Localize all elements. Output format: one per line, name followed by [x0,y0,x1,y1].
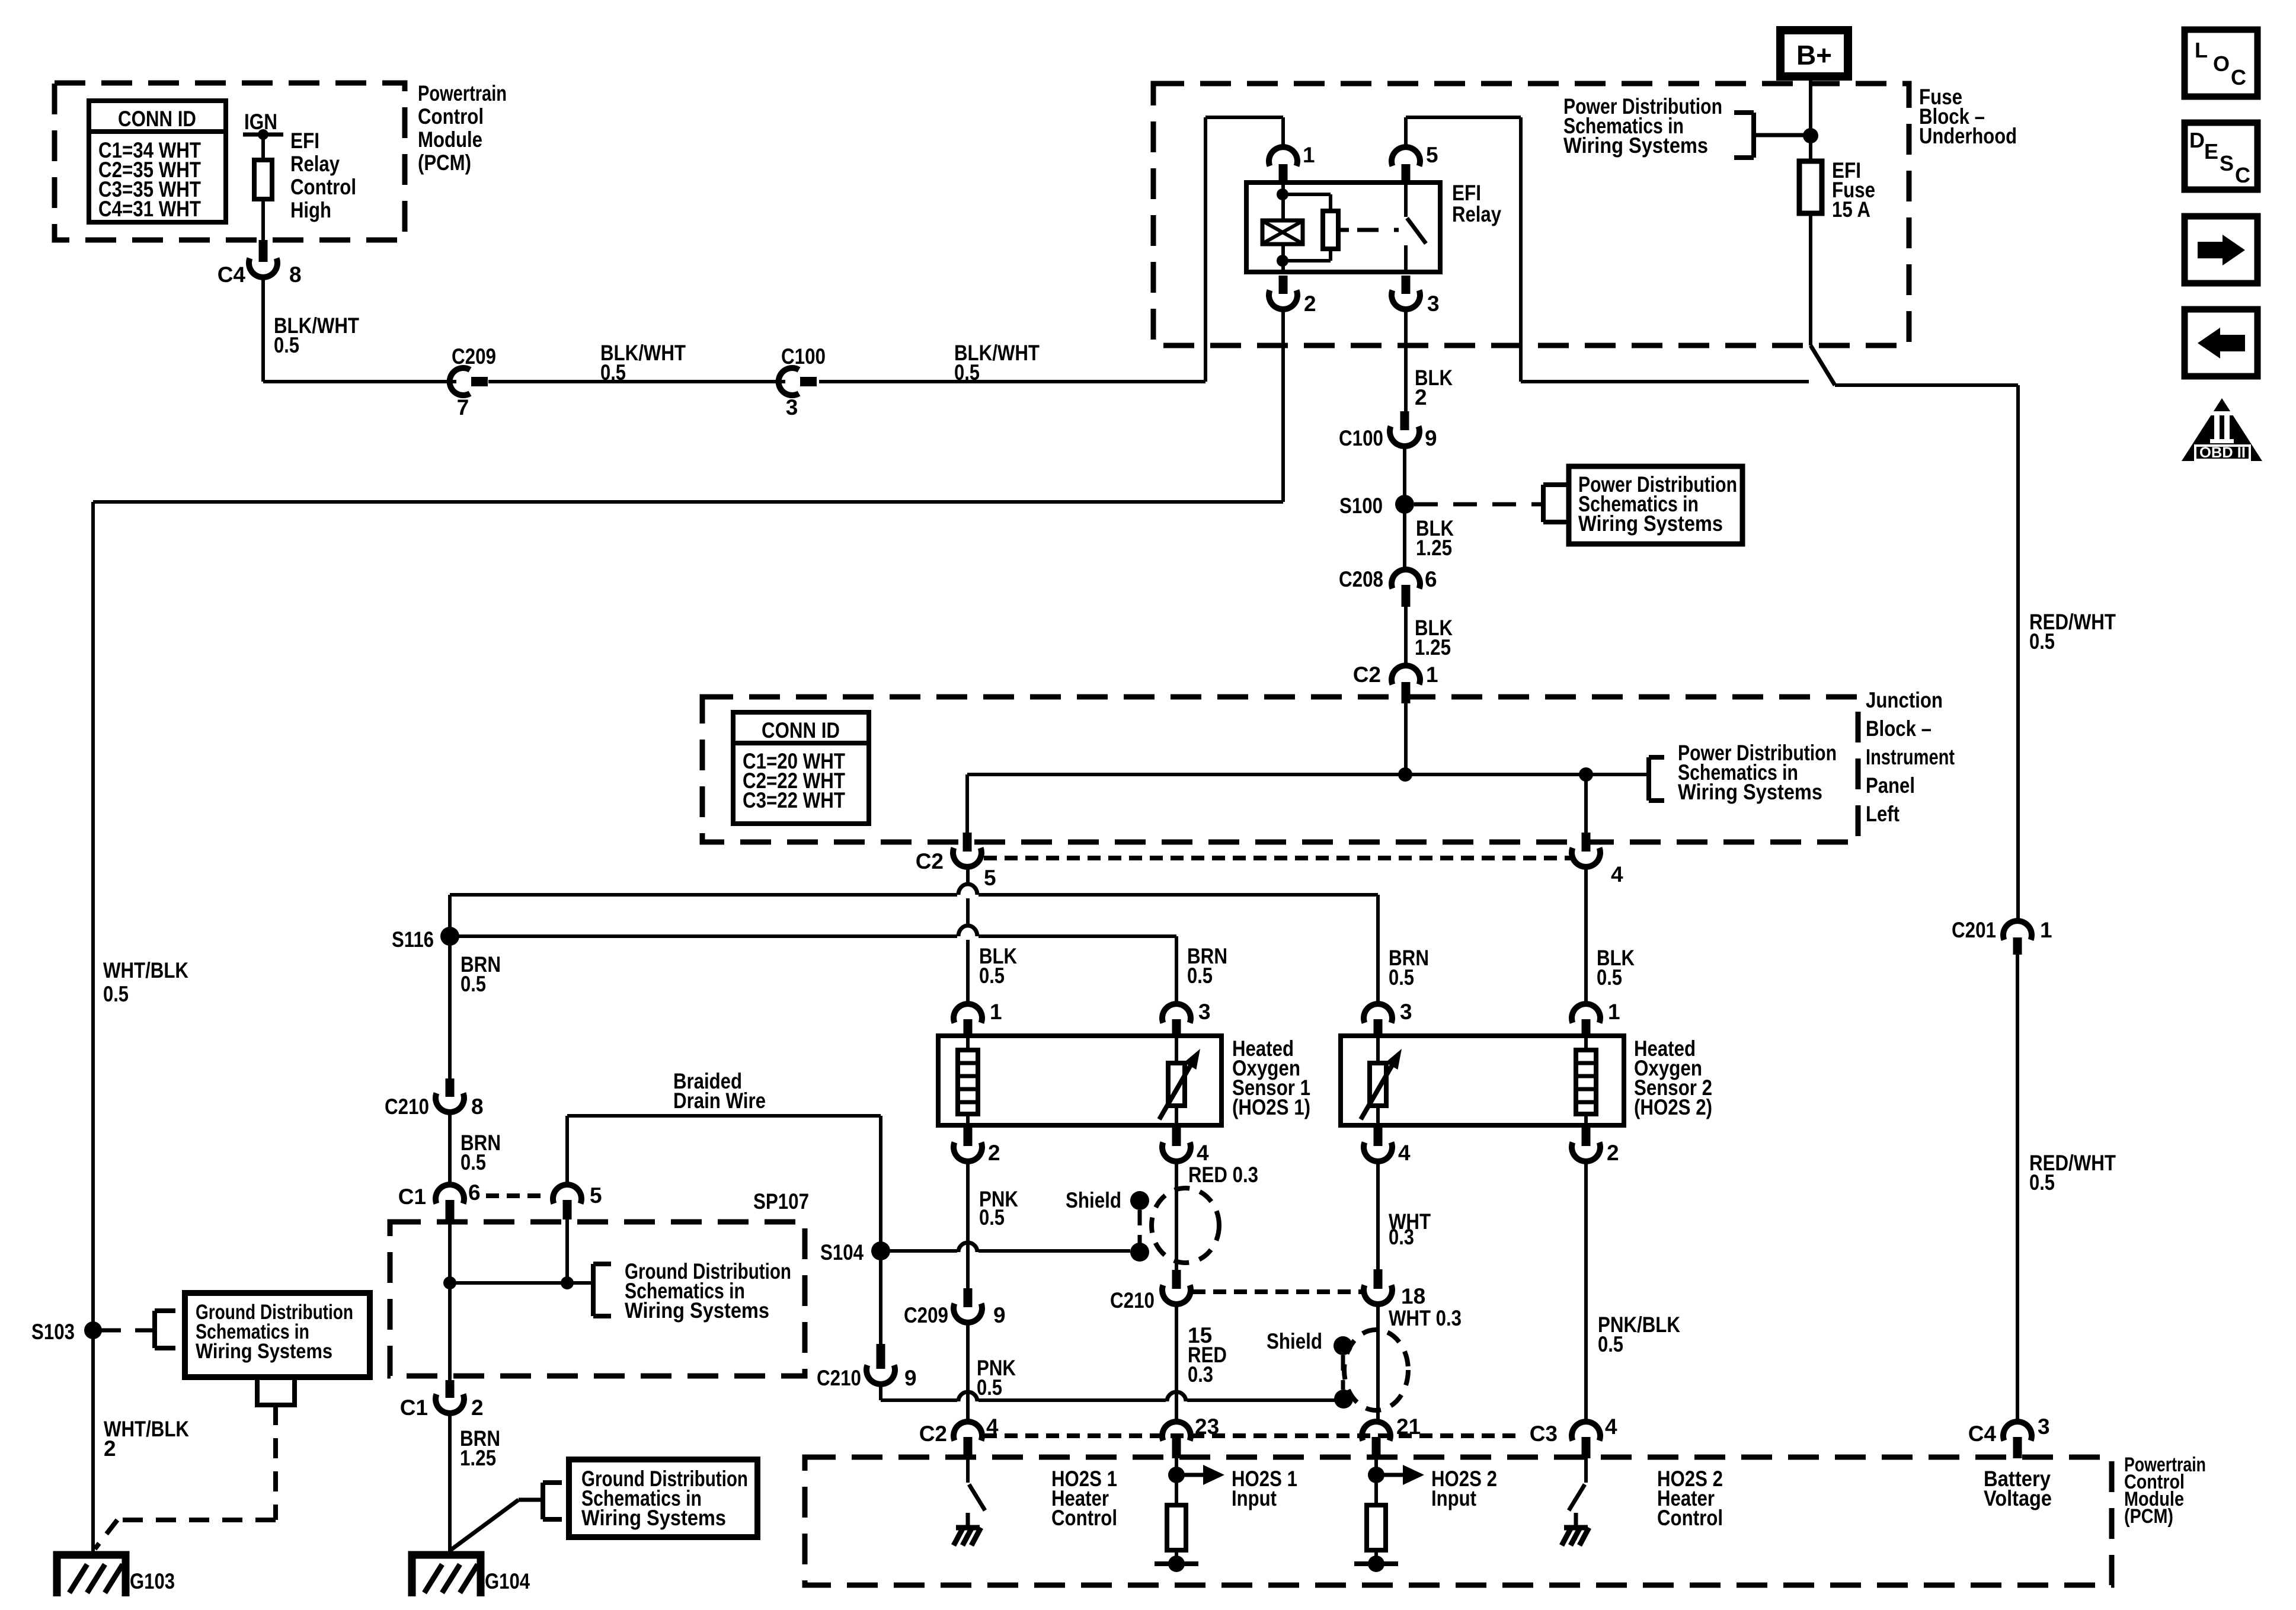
svg-text:Shield: Shield [1267,1329,1322,1353]
svg-text:C100: C100 [781,344,826,369]
svg-text:1: 1 [2040,918,2052,942]
svg-text:Wiring Systems: Wiring Systems [1578,511,1723,536]
svg-text:WHT 0.3: WHT 0.3 [1389,1306,1462,1330]
svg-text:0.5: 0.5 [103,982,129,1006]
svg-text:Underhood: Underhood [1919,124,2017,148]
svg-text:S116: S116 [392,927,434,952]
svg-text:5: 5 [1426,143,1438,167]
svg-text:9: 9 [993,1303,1006,1327]
svg-text:(PCM): (PCM) [2124,1505,2173,1528]
svg-text:C4: C4 [1968,1422,1997,1446]
svg-text:1: 1 [1303,143,1315,167]
svg-text:9: 9 [1425,426,1437,450]
svg-text:3: 3 [2038,1414,2050,1439]
svg-text:0.5: 0.5 [954,360,980,385]
svg-text:C3: C3 [1530,1422,1558,1446]
svg-text:E: E [2204,139,2218,164]
svg-text:4: 4 [1605,1414,1617,1439]
svg-text:Wiring Systems: Wiring Systems [625,1298,769,1323]
svg-text:9: 9 [904,1366,917,1390]
svg-text:C100: C100 [1339,426,1383,450]
svg-text:3: 3 [786,395,798,420]
svg-text:C2: C2 [1353,662,1381,687]
svg-text:C3=22 WHT: C3=22 WHT [743,788,845,812]
svg-text:0.5: 0.5 [1389,965,1414,990]
svg-text:Panel: Panel [1866,773,1915,798]
svg-text:15 A: 15 A [1832,197,1870,222]
svg-text:Wiring Systems: Wiring Systems [581,1506,726,1530]
svg-text:1: 1 [990,1000,1002,1024]
svg-text:0.5: 0.5 [2029,629,2055,654]
svg-text:Left: Left [1866,802,1900,826]
svg-text:C1: C1 [400,1395,428,1420]
svg-text:C2: C2 [919,1422,947,1446]
svg-text:4: 4 [1398,1141,1411,1165]
svg-text:4: 4 [1197,1141,1209,1165]
svg-text:2: 2 [988,1141,1000,1165]
svg-text:Control: Control [1051,1506,1117,1530]
svg-text:Wiring Systems: Wiring Systems [1563,133,1708,158]
svg-text:Powertrain: Powertrain [418,81,507,105]
svg-text:(HO2S 1): (HO2S 1) [1232,1095,1310,1119]
svg-text:Wiring Systems: Wiring Systems [1678,780,1822,804]
svg-text:Relay: Relay [1452,202,1501,226]
svg-text:C201: C201 [1952,918,1996,942]
svg-text:(PCM): (PCM) [418,151,471,175]
svg-text:C210: C210 [817,1366,861,1390]
svg-text:S100: S100 [1339,494,1383,518]
svg-text:C209: C209 [904,1303,948,1327]
svg-text:C210: C210 [1110,1288,1155,1313]
svg-text:8: 8 [289,263,302,287]
svg-text:B+: B+ [1796,40,1832,71]
svg-text:0.5: 0.5 [461,972,486,996]
svg-text:6: 6 [1425,567,1437,591]
svg-text:G104: G104 [485,1569,530,1593]
svg-text:G103: G103 [130,1569,175,1593]
svg-text:Control: Control [1657,1506,1723,1530]
svg-text:4: 4 [1611,862,1623,886]
svg-text:C1: C1 [398,1185,426,1209]
svg-text:0.5: 0.5 [461,1150,486,1174]
svg-text:L: L [2195,38,2208,62]
svg-text:7: 7 [457,395,469,420]
svg-text:C2: C2 [916,849,944,873]
svg-text:3: 3 [1427,292,1440,316]
svg-text:0.5: 0.5 [977,1375,1002,1400]
svg-text:Control: Control [418,104,484,129]
svg-text:OBD II: OBD II [2199,444,2246,461]
svg-text:5: 5 [984,866,996,890]
svg-text:WHT/BLK: WHT/BLK [103,958,188,982]
svg-text:Shield: Shield [1066,1188,1121,1212]
svg-text:High: High [290,198,331,222]
svg-text:C: C [2235,163,2250,187]
svg-text:Relay: Relay [290,152,340,176]
svg-text:Control: Control [290,175,356,199]
svg-text:C4=31 WHT: C4=31 WHT [98,197,201,221]
svg-text:EFI: EFI [290,129,319,153]
svg-text:2: 2 [104,1436,116,1461]
svg-text:CONN ID: CONN ID [118,107,196,131]
svg-text:0.5: 0.5 [1597,965,1622,990]
svg-text:3: 3 [1400,1000,1412,1024]
svg-text:Module: Module [418,127,482,152]
svg-text:0.5: 0.5 [2029,1170,2055,1195]
svg-text:2: 2 [1415,385,1427,409]
svg-text:0.3: 0.3 [1389,1225,1414,1249]
svg-text:C: C [2231,65,2246,89]
svg-text:Block –: Block – [1866,716,1932,741]
svg-text:5: 5 [590,1183,602,1208]
svg-text:1: 1 [1426,662,1438,687]
svg-text:WHT/BLK: WHT/BLK [104,1417,189,1441]
svg-text:Input: Input [1232,1486,1277,1510]
svg-text:1.25: 1.25 [1415,635,1451,660]
svg-text:Drain Wire: Drain Wire [673,1089,766,1113]
svg-text:0.5: 0.5 [979,1205,1005,1230]
svg-text:C4: C4 [218,263,246,287]
svg-text:CONN ID: CONN ID [762,718,840,742]
svg-text:0.5: 0.5 [979,964,1005,988]
svg-text:0.5: 0.5 [274,333,299,357]
svg-text:1.25: 1.25 [460,1446,496,1470]
svg-text:8: 8 [471,1094,484,1119]
svg-text:Instrument: Instrument [1866,745,1955,769]
svg-text:Wiring Systems: Wiring Systems [196,1340,332,1363]
svg-text:(HO2S 2): (HO2S 2) [1634,1095,1712,1119]
svg-text:2: 2 [471,1395,484,1420]
svg-text:2: 2 [1304,292,1316,316]
svg-text:0.5: 0.5 [1187,964,1213,988]
svg-text:Voltage: Voltage [1984,1486,2052,1510]
svg-text:C209: C209 [452,344,496,369]
svg-text:S: S [2220,151,2234,175]
svg-text:3: 3 [1198,1000,1211,1024]
svg-text:RED 0.3: RED 0.3 [1188,1163,1258,1187]
svg-text:S103: S103 [31,1320,75,1344]
svg-text:C210: C210 [385,1094,429,1119]
svg-text:0.5: 0.5 [1598,1332,1623,1356]
svg-text:1.25: 1.25 [1416,536,1452,560]
svg-text:18: 18 [1401,1284,1425,1308]
svg-text:6: 6 [468,1180,481,1205]
svg-text:Input: Input [1431,1486,1476,1510]
svg-text:SP107: SP107 [753,1189,809,1214]
svg-text:0.5: 0.5 [600,360,626,385]
svg-text:D: D [2189,128,2205,152]
svg-text:C208: C208 [1339,567,1383,591]
svg-text:Junction: Junction [1866,688,1943,712]
svg-text:O: O [2213,52,2230,76]
svg-text:EFI: EFI [1452,181,1481,205]
svg-text:S104: S104 [820,1240,864,1265]
svg-text:2: 2 [1607,1141,1619,1165]
svg-text:0.3: 0.3 [1188,1362,1213,1387]
svg-text:1: 1 [1608,1000,1620,1024]
